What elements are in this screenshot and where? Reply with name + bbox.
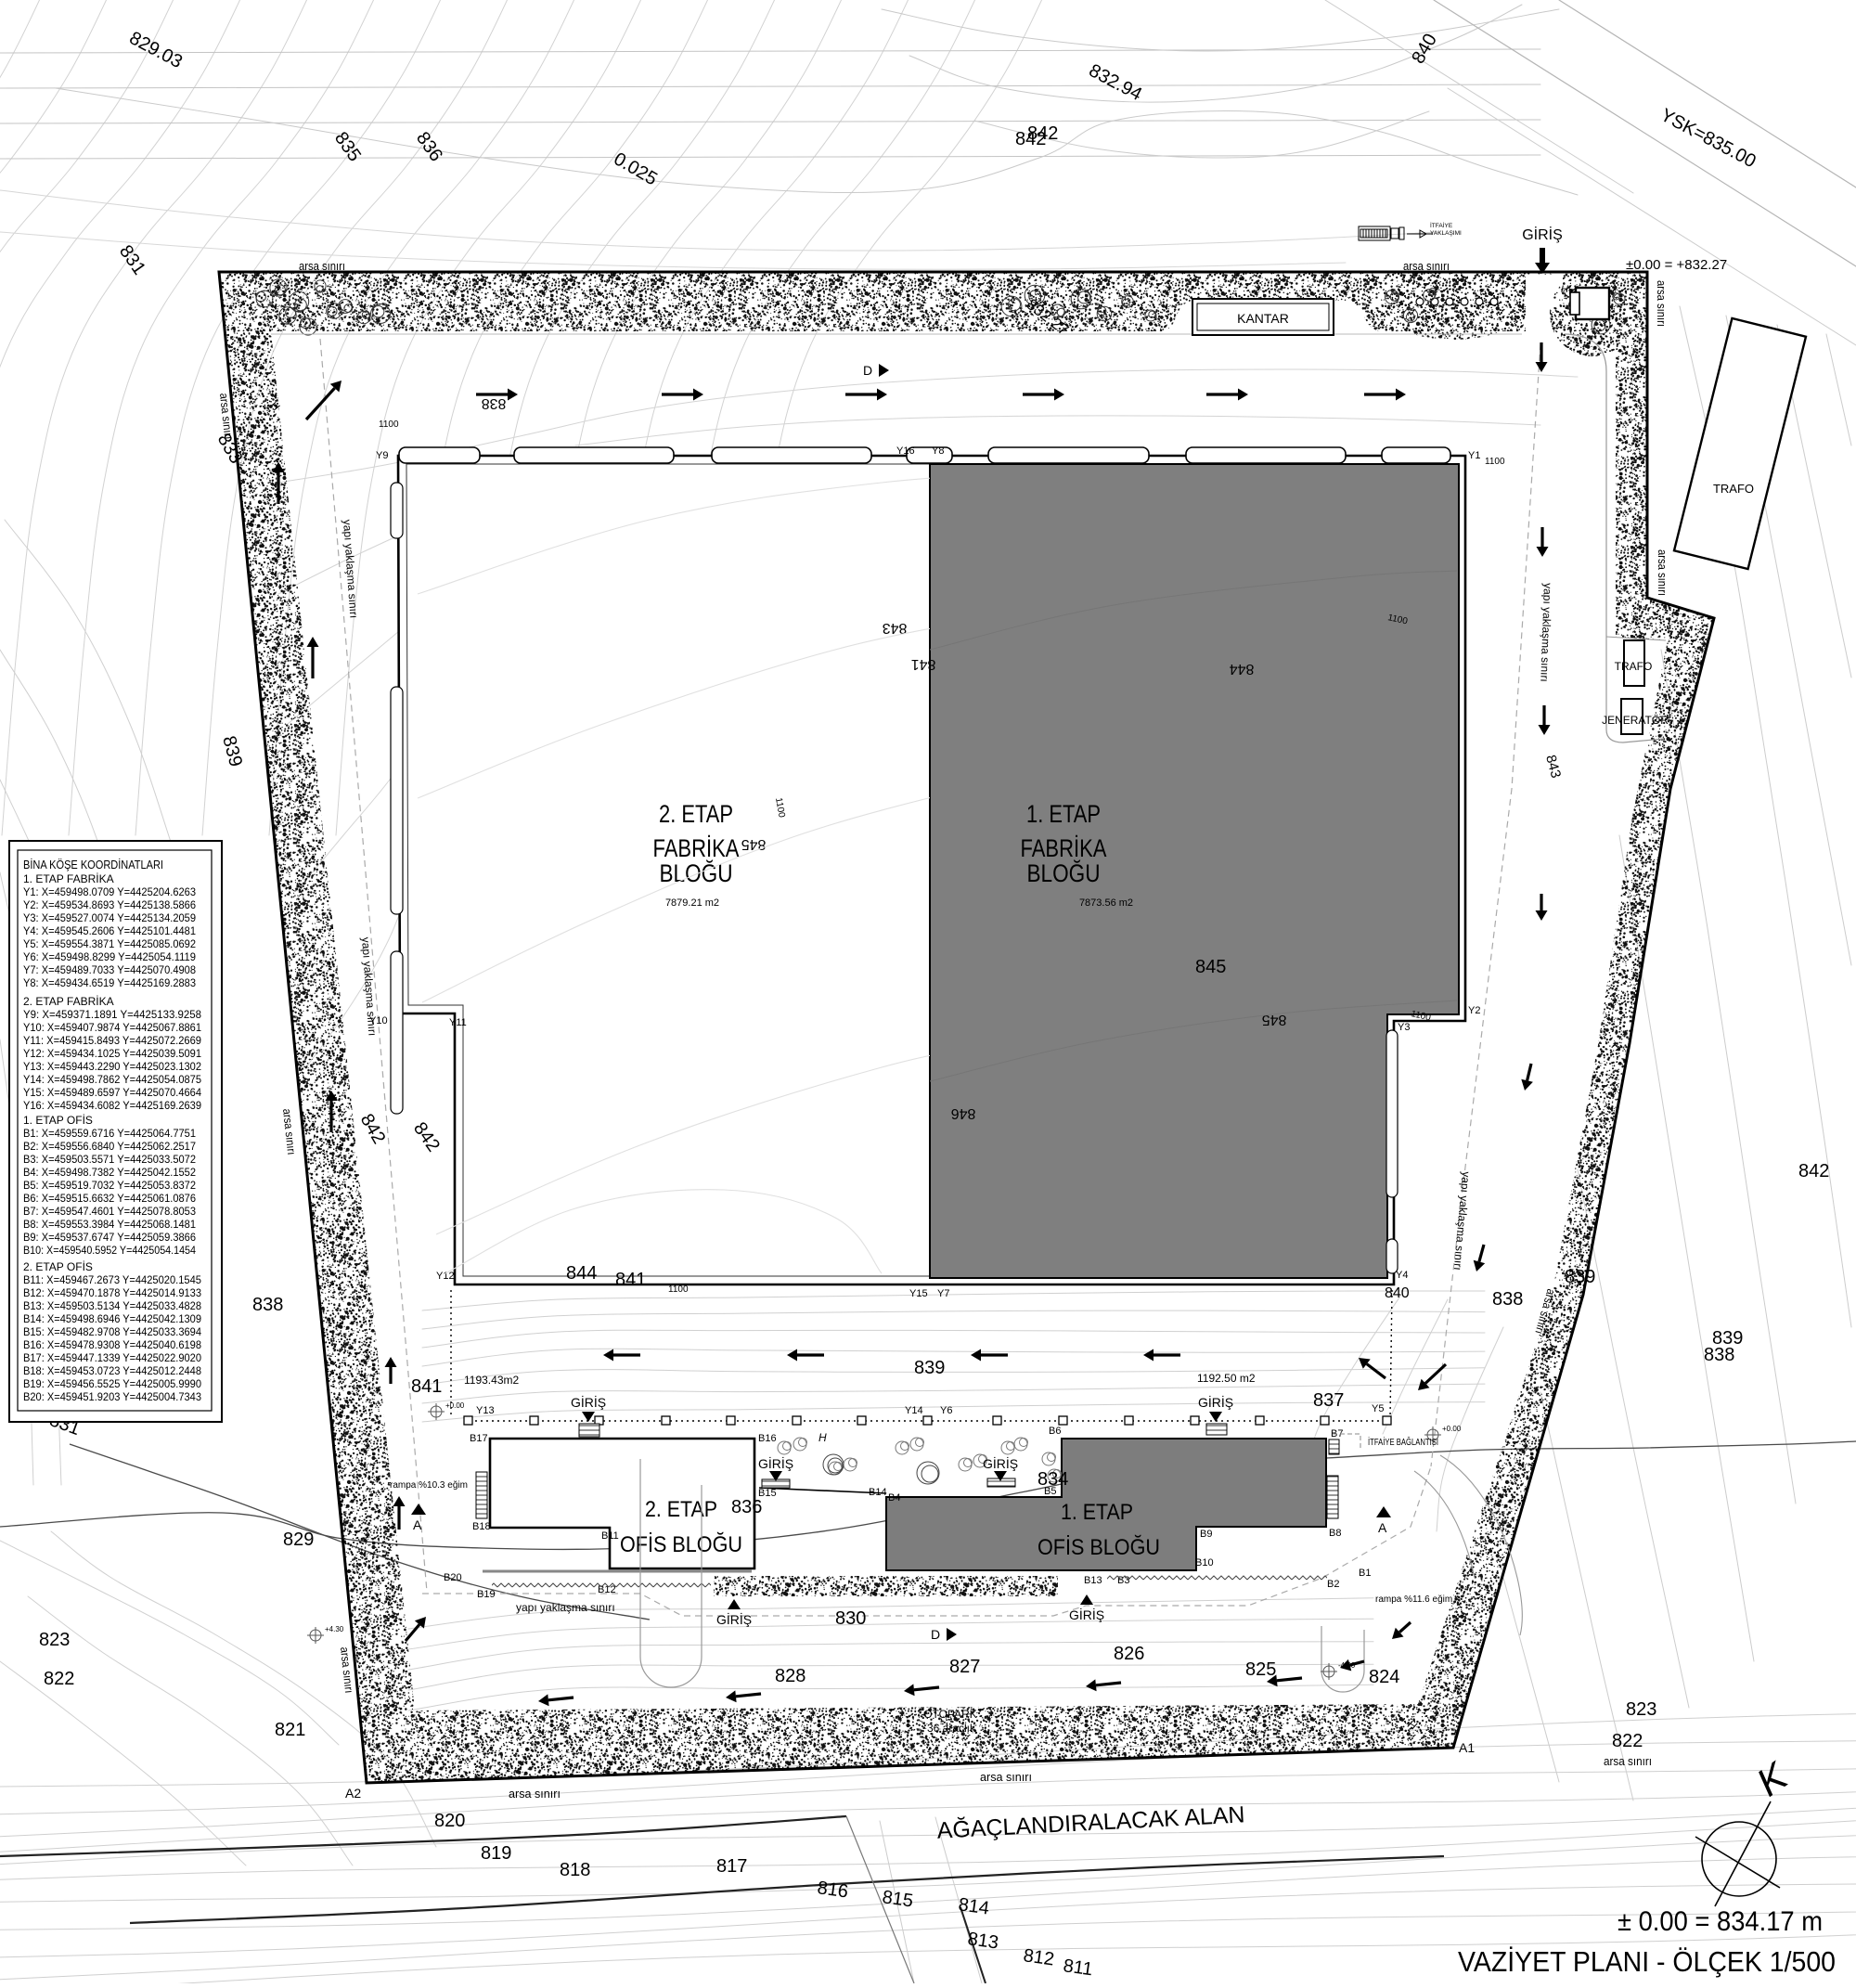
svg-text:36 araçlık: 36 araçlık [927,1722,976,1735]
svg-text:1100: 1100 [1485,457,1505,467]
svg-text:arsa sınırı: arsa sınırı [1656,549,1669,596]
svg-text:A1: A1 [1459,1740,1475,1755]
svg-text:Y15: Y15 [909,1288,928,1299]
svg-text:822: 822 [1612,1731,1643,1751]
svg-text:B2: B2 [1327,1579,1339,1590]
svg-text:Y1: Y1 [1468,450,1480,461]
svg-text:818: 818 [560,1860,590,1880]
svg-text:B10: X=459540.5952 Y=4425054.: B10: X=459540.5952 Y=4425054.1454 [23,1244,196,1257]
svg-text:B1: B1 [1359,1568,1371,1579]
svg-text:OTOPARK: OTOPARK [923,1708,977,1721]
svg-text:Y9: Y9 [376,450,388,461]
svg-text:845: 845 [1195,957,1226,977]
svg-text:± 0.00 = 834.17 m: ± 0.00 = 834.17 m [1618,1906,1823,1937]
svg-text:837: 837 [1313,1390,1344,1411]
svg-text:B10: B10 [1195,1557,1214,1568]
svg-text:822: 822 [44,1669,74,1689]
svg-text:824: 824 [1369,1667,1399,1687]
svg-text:843: 843 [883,620,908,636]
svg-text:Y14: X=459498.7862 Y=4425054.: Y14: X=459498.7862 Y=4425054.0875 [23,1073,201,1086]
svg-text:YAKLAŞIMI: YAKLAŞIMI [1430,230,1462,237]
svg-text:Y1: X=459498.0709 Y=4425204.6: Y1: X=459498.0709 Y=4425204.6263 [23,885,196,898]
svg-text:BLOĞU: BLOĞU [1027,858,1101,887]
svg-text:Y4: X=459545.2606 Y=4425101.4: Y4: X=459545.2606 Y=4425101.4481 [23,924,196,937]
svg-text:OFİS BLOĞU: OFİS BLOĞU [620,1532,742,1557]
svg-text:Y3: Y3 [1398,1022,1410,1033]
svg-text:arsa sınırı: arsa sınırı [509,1788,561,1801]
svg-text:B9: B9 [1200,1529,1212,1540]
svg-text:B19: B19 [477,1589,496,1600]
svg-text:D: D [863,363,872,378]
svg-text:838: 838 [482,395,507,411]
svg-text:819: 819 [481,1843,511,1864]
svg-text:816: 816 [816,1878,849,1902]
svg-text:B20: B20 [444,1572,462,1583]
svg-text:Y11: X=459415.8493 Y=4425072.: Y11: X=459415.8493 Y=4425072.2669 [23,1034,201,1047]
svg-text:2. ETAP: 2. ETAP [645,1497,717,1522]
svg-text:813: 813 [966,1929,999,1953]
svg-text:836: 836 [731,1497,762,1517]
svg-text:B13: X=459503.5134 Y=4425033.: B13: X=459503.5134 Y=4425033.4828 [23,1299,201,1312]
svg-text:Y8: X=459434.6519 Y=4425169.2: Y8: X=459434.6519 Y=4425169.2883 [23,976,196,989]
svg-text:Y13: X=459443.2290 Y=4425023.: Y13: X=459443.2290 Y=4425023.1302 [23,1060,201,1073]
svg-text:2. ETAP FABRİKA: 2. ETAP FABRİKA [23,995,114,1008]
svg-text:817: 817 [716,1856,747,1877]
svg-text:B14: B14 [869,1487,887,1498]
svg-text:Y6: X=459498.8299 Y=4425054.1: Y6: X=459498.8299 Y=4425054.1119 [23,950,196,963]
svg-text:1. ETAP: 1. ETAP [1061,1500,1133,1525]
svg-text:823: 823 [1626,1699,1656,1720]
svg-text:830: 830 [835,1608,866,1629]
svg-text:GİRİŞ: GİRİŞ [1198,1394,1233,1410]
svg-text:Y6: Y6 [940,1405,952,1416]
svg-text:1192.50 m2: 1192.50 m2 [1197,1372,1256,1385]
svg-text:823: 823 [39,1630,70,1650]
svg-text:842: 842 [1027,123,1058,144]
svg-text:821: 821 [275,1720,305,1740]
svg-text:B12: X=459470.1878 Y=4425014.: B12: X=459470.1878 Y=4425014.9133 [23,1286,201,1299]
svg-text:B6: B6 [1049,1426,1061,1437]
svg-text:B13: B13 [1084,1575,1102,1586]
svg-text:arsa sınırı: arsa sınırı [980,1771,1032,1784]
svg-text:B1: X=459559.6716 Y=4425064.7: B1: X=459559.6716 Y=4425064.7751 [23,1127,196,1140]
svg-text:±0.00 = +832.27: ±0.00 = +832.27 [1626,257,1727,273]
svg-text:829: 829 [283,1530,314,1550]
svg-text:B2: X=459556.6840 Y=4425062.2: B2: X=459556.6840 Y=4425062.2517 [23,1140,196,1153]
svg-text:VAZİYET PLANI - ÖLÇEK 1/500: VAZİYET PLANI - ÖLÇEK 1/500 [1458,1945,1836,1978]
svg-text:844: 844 [566,1263,597,1284]
svg-text:rampa %10.3 eğim: rampa %10.3 eğim [390,1480,468,1491]
svg-text:arsa sınırı: arsa sınırı [1655,280,1668,327]
svg-text:844: 844 [1230,661,1255,677]
svg-text:841: 841 [615,1270,646,1290]
svg-text:B4: B4 [888,1492,900,1504]
svg-text:H: H [818,1431,827,1444]
svg-text:arsa sınırı: arsa sınırı [1403,260,1450,273]
svg-text:TRAFO: TRAFO [1713,482,1754,496]
svg-text:B6: X=459515.6632 Y=4425061.0: B6: X=459515.6632 Y=4425061.0876 [23,1192,196,1205]
svg-text:Y2: X=459534.8693 Y=4425138.5: Y2: X=459534.8693 Y=4425138.5866 [23,898,196,911]
svg-text:B15: X=459482.9708 Y=4425033.: B15: X=459482.9708 Y=4425033.3694 [23,1325,201,1338]
svg-text:B17: B17 [470,1433,488,1444]
svg-text:B19: X=459456.5525 Y=4425005.: B19: X=459456.5525 Y=4425005.9990 [23,1377,201,1390]
svg-text:GİRİŞ: GİRİŞ [1522,226,1563,243]
svg-text:GİRİŞ: GİRİŞ [571,1394,606,1410]
svg-text:İTFAİYE BAĞLANTISI: İTFAİYE BAĞLANTISI [1368,1436,1438,1448]
svg-text:838: 838 [1492,1289,1523,1310]
svg-text:Y5: X=459554.3871 Y=4425085.0: Y5: X=459554.3871 Y=4425085.0692 [23,937,196,950]
svg-text:Y4: Y4 [1396,1270,1408,1281]
svg-text:D: D [931,1627,940,1642]
svg-text:+0.00: +0.00 [1442,1425,1462,1433]
svg-text:Y9: X=459371.1891 Y=4425133: Y9: X=459371.1891 Y=4425133.9258 [23,1008,201,1021]
svg-text:KANTAR: KANTAR [1237,311,1289,326]
svg-text:1. ETAP: 1. ETAP [1026,800,1101,828]
svg-text:838: 838 [1704,1345,1734,1365]
svg-text:GİRİŞ: GİRİŞ [716,1611,752,1627]
svg-text:Y13: Y13 [476,1405,495,1416]
svg-text:arsa sınırı: arsa sınırı [1604,1755,1652,1768]
svg-text:811: 811 [1062,1956,1094,1980]
svg-text:B4: X=459498.7382 Y=4425042.1: B4: X=459498.7382 Y=4425042.1552 [23,1166,196,1179]
svg-text:Y15: X=459489.6597 Y=4425070.: Y15: X=459489.6597 Y=4425070.4664 [23,1086,201,1099]
svg-text:GİRİŞ: GİRİŞ [983,1455,1018,1471]
svg-text:814: 814 [957,1894,990,1918]
svg-text:840: 840 [1385,1285,1410,1301]
svg-text:7873.56 m2: 7873.56 m2 [1079,897,1133,909]
svg-text:B9: X=459537.6747 Y=4425059.3: B9: X=459537.6747 Y=4425059.3866 [23,1231,196,1244]
svg-text:2. ETAP OFİS: 2. ETAP OFİS [23,1260,93,1273]
svg-text:rampa %11.6 eğim: rampa %11.6 eğim [1375,1594,1452,1605]
svg-text:A: A [1378,1520,1387,1535]
svg-text:839: 839 [1565,1267,1595,1287]
svg-text:B11: B11 [601,1530,619,1542]
svg-text:B20: X=459451.9203 Y=4425004.: B20: X=459451.9203 Y=4425004.7343 [23,1390,201,1403]
svg-text:1. ETAP OFİS: 1. ETAP OFİS [23,1114,93,1127]
svg-text:Y5: Y5 [1372,1403,1384,1414]
svg-text:A2: A2 [345,1786,361,1801]
svg-text:846: 846 [951,1105,976,1121]
svg-text:Y16: X=459434.6082 Y=4425169.: Y16: X=459434.6082 Y=4425169.2639 [23,1099,201,1112]
svg-text:842: 842 [1798,1161,1829,1181]
svg-text:841: 841 [911,656,936,672]
svg-text:Y14: Y14 [905,1405,923,1416]
svg-text:7879.21 m2: 7879.21 m2 [665,897,719,909]
svg-text:B11: X=459467.2673 Y=4425020.: B11: X=459467.2673 Y=4425020.1545 [23,1273,201,1286]
svg-text:OFİS BLOĞU: OFİS BLOĞU [1038,1535,1160,1560]
svg-text:1100: 1100 [668,1284,689,1295]
svg-text:B18: X=459453.0723 Y=4425012.: B18: X=459453.0723 Y=4425012.2448 [23,1364,201,1377]
svg-text:839: 839 [914,1358,945,1378]
svg-text:Y16: Y16 [896,445,915,457]
svg-text:B3: X=459503.5571 Y=4425033.5: B3: X=459503.5571 Y=4425033.5072 [23,1153,196,1166]
svg-text:1100: 1100 [379,420,399,430]
svg-text:Y11: Y11 [449,1017,467,1028]
svg-text:815: 815 [881,1887,914,1911]
svg-text:GİRİŞ: GİRİŞ [1069,1607,1104,1622]
svg-text:B14: X=459498.6946 Y=4425042.: B14: X=459498.6946 Y=4425042.1309 [23,1312,201,1325]
svg-text:2. ETAP: 2. ETAP [659,800,733,828]
svg-text:812: 812 [1022,1945,1055,1969]
svg-text:FABRİKA: FABRİKA [653,833,740,862]
svg-text:BLOĞU: BLOĞU [660,858,733,887]
svg-text:GİRİŞ: GİRİŞ [758,1455,793,1471]
svg-text:841: 841 [411,1376,442,1397]
svg-text:FABRİKA: FABRİKA [1021,833,1107,862]
svg-text:Y7: Y7 [937,1288,949,1299]
svg-text:BİNA KÖŞE KOORDİNATLARI: BİNA KÖŞE KOORDİNATLARI [23,858,163,871]
svg-text:+4.30: +4.30 [325,1625,344,1633]
svg-text:834: 834 [1038,1469,1068,1490]
svg-text:B7: X=459547.4601 Y=4425078.8: B7: X=459547.4601 Y=4425078.8053 [23,1205,196,1218]
svg-text:arsa sınırı: arsa sınırı [299,260,345,273]
svg-text:838: 838 [252,1295,283,1315]
svg-text:Y10: X=459407.9874 Y=4425067.: Y10: X=459407.9874 Y=4425067.8861 [23,1021,201,1034]
svg-text:845: 845 [741,836,767,852]
svg-text:827: 827 [949,1657,980,1677]
svg-text:828: 828 [775,1666,806,1686]
svg-text:+0.00: +0.00 [445,1401,465,1410]
svg-text:Y7: X=459489.7033 Y=4425070.4: Y7: X=459489.7033 Y=4425070.4908 [23,963,196,976]
svg-text:Y12: Y12 [436,1271,455,1282]
svg-text:B8: X=459553.3984 Y=4425068.1: B8: X=459553.3984 Y=4425068.1481 [23,1218,196,1231]
svg-text:Y12: X=459434.1025 Y=4425039.: Y12: X=459434.1025 Y=4425039.5091 [23,1047,201,1060]
svg-text:B8: B8 [1329,1528,1341,1539]
svg-text:B18: B18 [472,1521,491,1532]
svg-text:Y8: Y8 [932,445,944,457]
svg-text:1193.43m2: 1193.43m2 [464,1374,519,1387]
svg-text:B16: B16 [758,1433,777,1444]
svg-text:B17: X=459447.1339 Y=4425022.: B17: X=459447.1339 Y=4425022.9020 [23,1351,201,1364]
svg-text:Y3: X=459527.0074 Y=4425134.2: Y3: X=459527.0074 Y=4425134.2059 [23,911,196,924]
svg-text:B16: X=459478.9308 Y=4425040.: B16: X=459478.9308 Y=4425040.6198 [23,1338,201,1351]
svg-text:İTFAİYE: İTFAİYE [1430,221,1453,229]
svg-text:826: 826 [1114,1644,1144,1664]
svg-text:TRAFO: TRAFO [1615,660,1653,673]
svg-text:1. ETAP FABRİKA: 1. ETAP FABRİKA [23,872,114,885]
svg-text:Y2: Y2 [1468,1005,1480,1016]
svg-text:825: 825 [1245,1659,1276,1680]
svg-text:yapı yaklaşma sınırı: yapı yaklaşma sınırı [516,1601,615,1614]
svg-text:JENERATÖR: JENERATÖR [1602,714,1669,727]
svg-text:A: A [413,1517,422,1532]
svg-text:820: 820 [434,1811,465,1831]
svg-text:B5: X=459519.7032 Y=4425053.8: B5: X=459519.7032 Y=4425053.8372 [23,1179,196,1192]
